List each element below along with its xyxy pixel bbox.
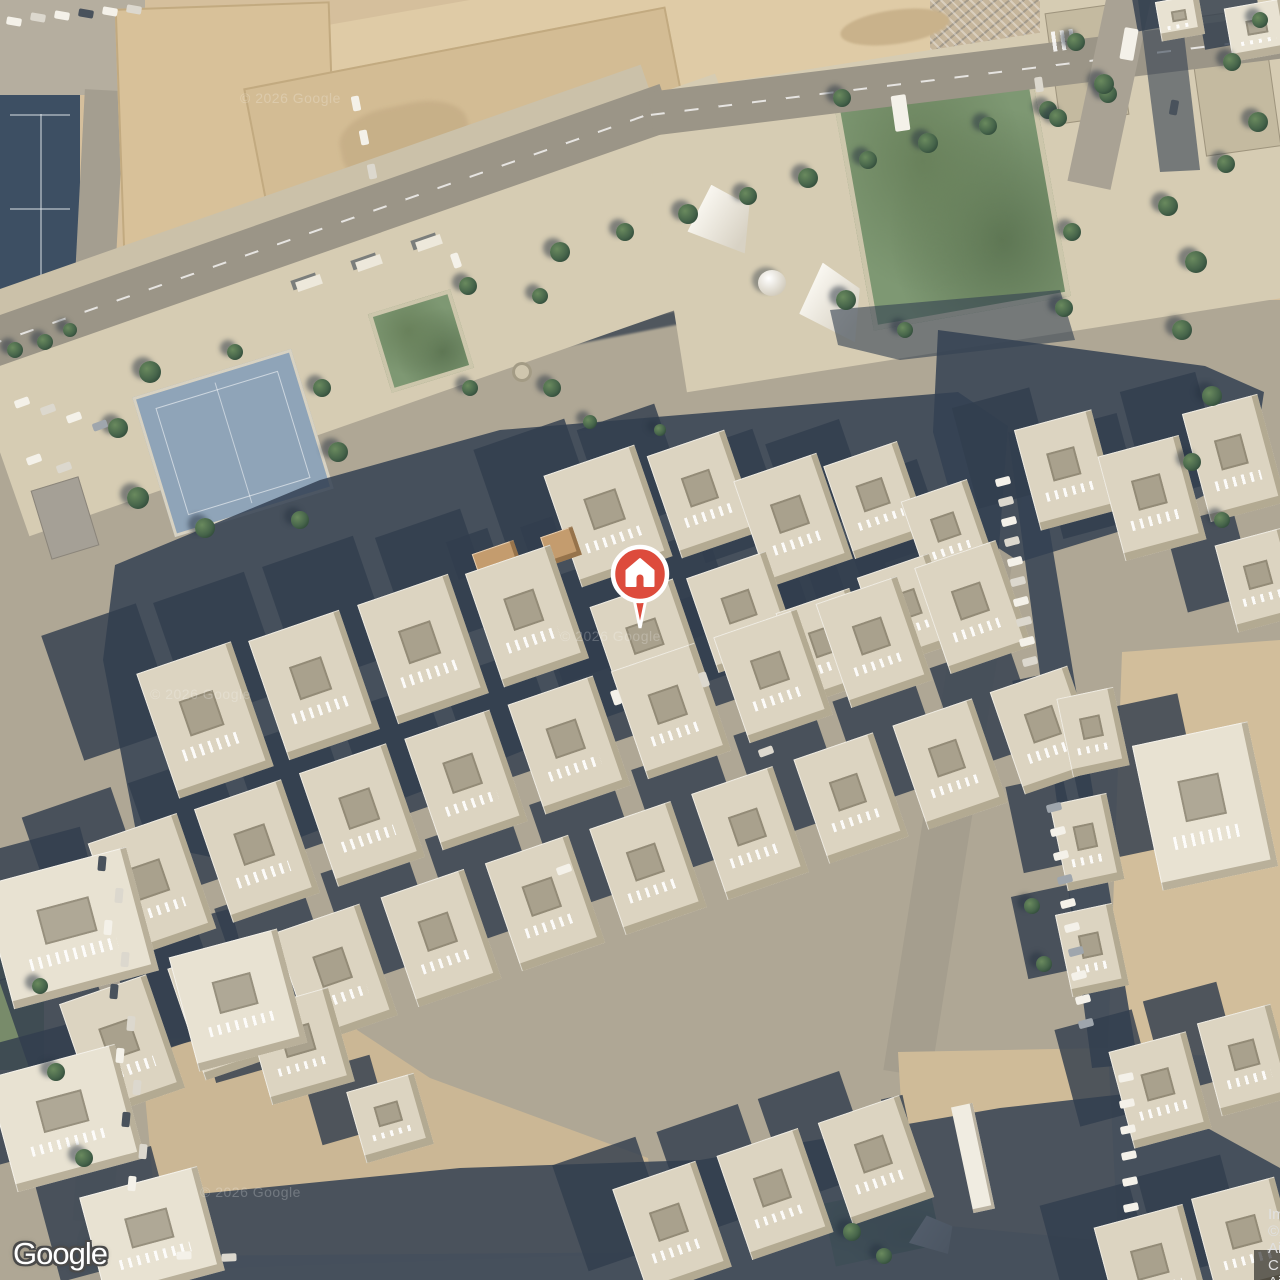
car: [120, 952, 129, 968]
rooftop-units: [503, 588, 545, 630]
rooftop-units: [1225, 1214, 1262, 1250]
rooftop-detail: [1173, 822, 1245, 850]
building-block: [1132, 721, 1278, 890]
tree: [616, 223, 634, 241]
rooftop-units: [648, 685, 688, 725]
tree: [1202, 386, 1222, 406]
rooftop-units: [1073, 823, 1099, 851]
car: [54, 10, 70, 20]
car: [176, 1251, 191, 1260]
tree: [1248, 112, 1268, 132]
tree: [1217, 155, 1235, 173]
tree: [532, 288, 548, 304]
rooftop-units: [1227, 1038, 1260, 1071]
tree: [897, 322, 913, 338]
tree: [1024, 898, 1040, 914]
rooftop-units: [856, 477, 891, 512]
rooftop-detail: [1072, 852, 1108, 867]
car: [351, 95, 362, 111]
tree: [1185, 251, 1207, 273]
tree: [462, 380, 478, 396]
rooftop-units: [1140, 1067, 1175, 1101]
car: [14, 396, 31, 409]
tree: [7, 342, 23, 358]
tree: [1183, 453, 1201, 471]
rooftop-units: [851, 616, 890, 655]
car: [114, 888, 123, 904]
rooftop-units: [1214, 433, 1249, 471]
tree: [979, 117, 997, 135]
rooftop-detail: [1215, 470, 1263, 492]
rooftop-detail: [1139, 1100, 1188, 1121]
rooftop-detail: [1167, 22, 1194, 30]
google-watermark: © 2026 Google: [240, 90, 341, 106]
tree: [836, 290, 856, 310]
rooftop-units: [750, 650, 790, 690]
map-canvas[interactable]: © 2026 Google © 2026 Google © 2026 Googl…: [0, 0, 1280, 1280]
car: [221, 1253, 236, 1262]
rooftop-units: [1170, 9, 1188, 23]
tree: [63, 323, 77, 337]
rooftop-units: [1024, 705, 1062, 743]
car: [115, 1048, 124, 1064]
building-block: [1215, 527, 1280, 632]
rooftop-units: [770, 494, 810, 534]
car: [6, 16, 22, 26]
tree: [1158, 196, 1178, 216]
rooftop-units: [649, 1202, 689, 1242]
rooftop-units: [930, 511, 962, 542]
car: [26, 453, 43, 466]
tree: [1049, 109, 1067, 127]
car: [359, 129, 370, 145]
rooftop-units: [1079, 714, 1104, 740]
tree: [583, 415, 597, 429]
car: [126, 1016, 135, 1032]
tree: [227, 344, 243, 360]
rooftop-detail: [29, 937, 119, 971]
rooftop-units: [36, 1089, 90, 1133]
tree: [328, 442, 348, 462]
rooftop-detail: [1130, 509, 1181, 531]
car: [132, 1080, 141, 1096]
tree: [1067, 33, 1085, 51]
rooftop-units: [1131, 473, 1168, 510]
rooftop-units: [1130, 1243, 1170, 1280]
tree: [739, 187, 757, 205]
saved-place-pin[interactable]: [602, 524, 678, 632]
tree: [1063, 223, 1081, 241]
attribution-text: Imagery ©2026 Airbus, CNES / Airbus, Max…: [1268, 1206, 1280, 1280]
google-watermark: © 2026 Google: [200, 1184, 301, 1200]
tree: [1172, 320, 1192, 340]
rooftop-units: [1046, 446, 1081, 482]
car: [78, 8, 94, 18]
car: [102, 6, 118, 16]
rooftop-detail: [1226, 1069, 1272, 1089]
car: [121, 1112, 130, 1128]
tree: [843, 1223, 861, 1241]
rooftop-units: [928, 739, 967, 778]
tree: [139, 361, 161, 383]
rooftop-detail: [1242, 589, 1280, 608]
car: [127, 1176, 136, 1192]
tree: [678, 204, 698, 224]
building-block: [1055, 903, 1129, 997]
tree: [291, 511, 309, 529]
rooftop-units: [545, 718, 586, 759]
car: [66, 411, 83, 424]
tree: [459, 277, 477, 295]
rooftop-units: [681, 469, 719, 507]
car: [138, 1144, 147, 1160]
rooftop-detail: [30, 1127, 109, 1158]
building-block: [1197, 1004, 1280, 1116]
rooftop-units: [829, 773, 868, 812]
rooftop-units: [752, 1168, 791, 1207]
car: [367, 163, 378, 179]
rooftop-units: [720, 588, 758, 624]
car: [126, 4, 142, 14]
tree: [798, 168, 818, 188]
car: [1010, 576, 1027, 588]
rooftop-units: [625, 842, 664, 882]
rooftop-units: [36, 897, 97, 946]
car: [92, 419, 109, 432]
tree: [876, 1248, 892, 1264]
rooftop-detail: [1078, 741, 1114, 755]
car: [1022, 656, 1039, 668]
google-watermark: © 2026 Google: [150, 686, 251, 702]
rooftop-units: [398, 620, 442, 665]
rooftop-units: [233, 823, 275, 866]
rooftop-detail: [1046, 480, 1095, 501]
rooftop-units: [727, 807, 766, 847]
rooftop-units: [124, 1208, 174, 1249]
tree: [1055, 299, 1073, 317]
tree: [108, 418, 128, 438]
rooftop-units: [442, 753, 483, 795]
rooftop-units: [1177, 773, 1227, 822]
tree: [47, 1063, 65, 1081]
car: [56, 461, 73, 474]
car: [30, 12, 46, 22]
google-watermark: © 2026 Google: [560, 628, 661, 644]
attribution-bar: Imagery ©2026 Airbus, CNES / Airbus, Max…: [1254, 1250, 1280, 1280]
car: [109, 984, 118, 1000]
car: [1034, 77, 1044, 93]
tree: [918, 133, 938, 153]
google-logo[interactable]: Google: [13, 1236, 107, 1272]
rooftop-units: [338, 787, 380, 830]
rooftop-units: [373, 1100, 403, 1127]
building-block: [1155, 0, 1205, 42]
rooftop-units: [522, 877, 562, 917]
tree: [1223, 53, 1241, 71]
car: [103, 920, 112, 936]
tree: [1094, 74, 1114, 94]
car: [1119, 27, 1138, 61]
tree: [654, 424, 666, 436]
rooftop-units: [418, 911, 459, 952]
tree: [195, 518, 215, 538]
car: [40, 403, 57, 416]
rooftop-units: [312, 947, 353, 989]
car: [450, 252, 462, 269]
tree: [313, 379, 331, 397]
rooftop-units: [854, 1135, 893, 1174]
rooftop-detail: [208, 1010, 276, 1038]
rooftop-units: [211, 972, 258, 1014]
car: [891, 94, 911, 132]
tree: [37, 334, 53, 350]
rooftop-units: [289, 656, 333, 701]
car: [97, 856, 106, 872]
tree: [859, 151, 877, 169]
tree: [550, 242, 570, 262]
tree: [127, 487, 149, 509]
rooftop-detail: [1241, 36, 1277, 47]
tree: [75, 1149, 93, 1167]
tree: [32, 978, 48, 994]
tree: [1036, 956, 1052, 972]
tree: [1214, 512, 1230, 528]
rooftop-units: [950, 581, 989, 621]
tree: [1252, 12, 1268, 28]
car: [1007, 556, 1024, 568]
tree: [543, 379, 561, 397]
tree: [833, 89, 851, 107]
rooftop-units: [1242, 560, 1273, 591]
